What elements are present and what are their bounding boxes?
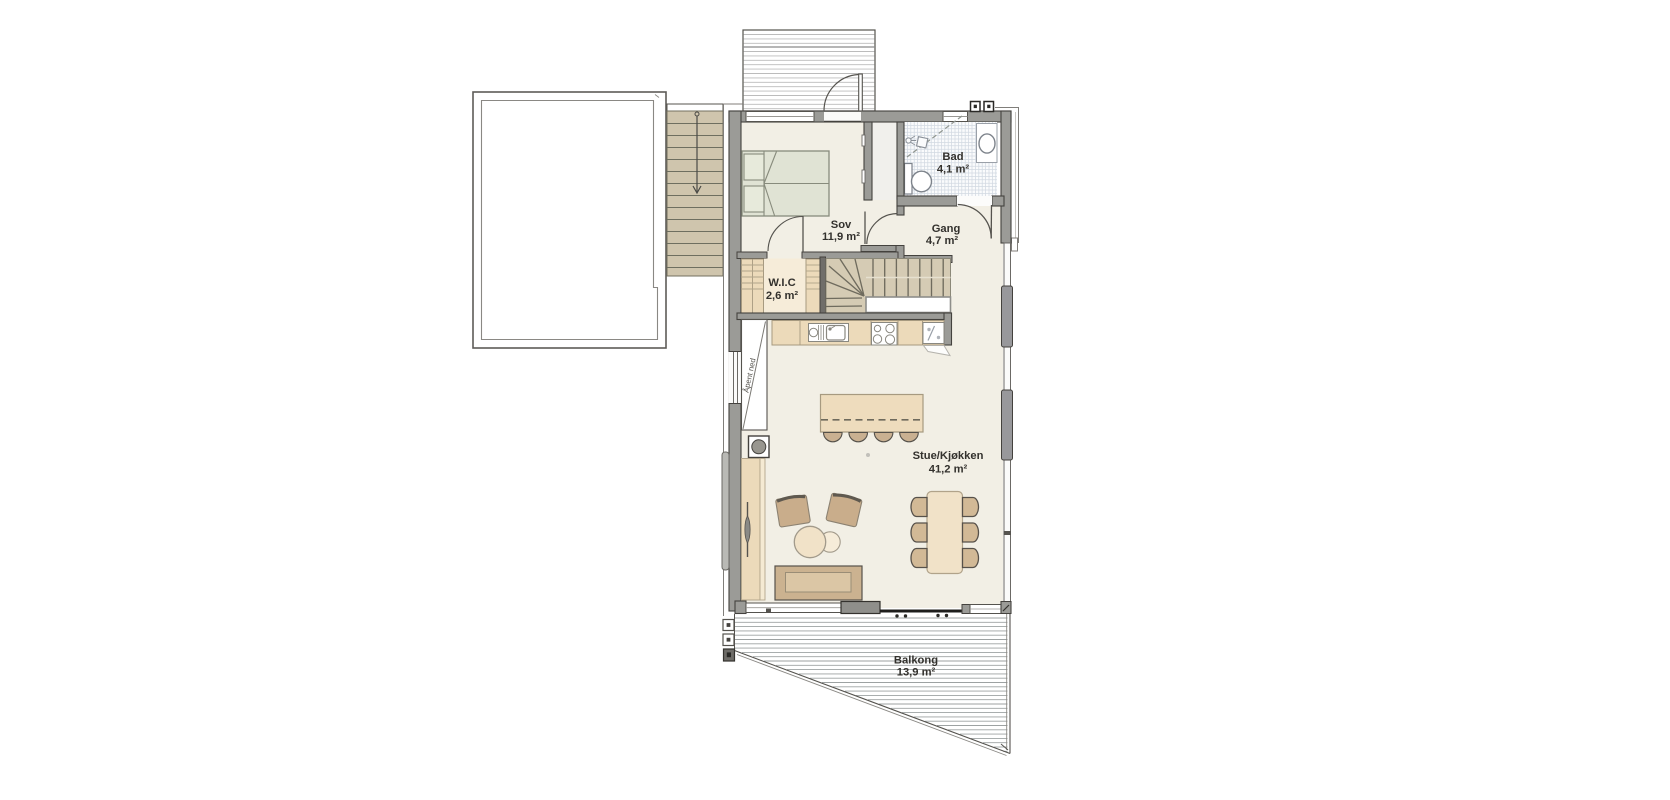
svg-text:Bad: Bad [942,151,963,163]
svg-text:2,6 m²: 2,6 m² [766,290,799,302]
svg-text:11,9 m²: 11,9 m² [822,231,860,243]
svg-text:13,9 m²: 13,9 m² [897,667,936,679]
svg-text:41,2 m²: 41,2 m² [929,464,968,476]
svg-text:Balkong: Balkong [894,655,938,667]
svg-text:Gang: Gang [932,223,961,235]
svg-text:W.I.C: W.I.C [768,277,795,289]
svg-text:4,1 m²: 4,1 m² [937,164,970,176]
svg-text:Stue/Kjøkken: Stue/Kjøkken [913,450,984,462]
svg-text:Sov: Sov [831,219,852,231]
svg-text:4,7 m²: 4,7 m² [926,235,959,247]
